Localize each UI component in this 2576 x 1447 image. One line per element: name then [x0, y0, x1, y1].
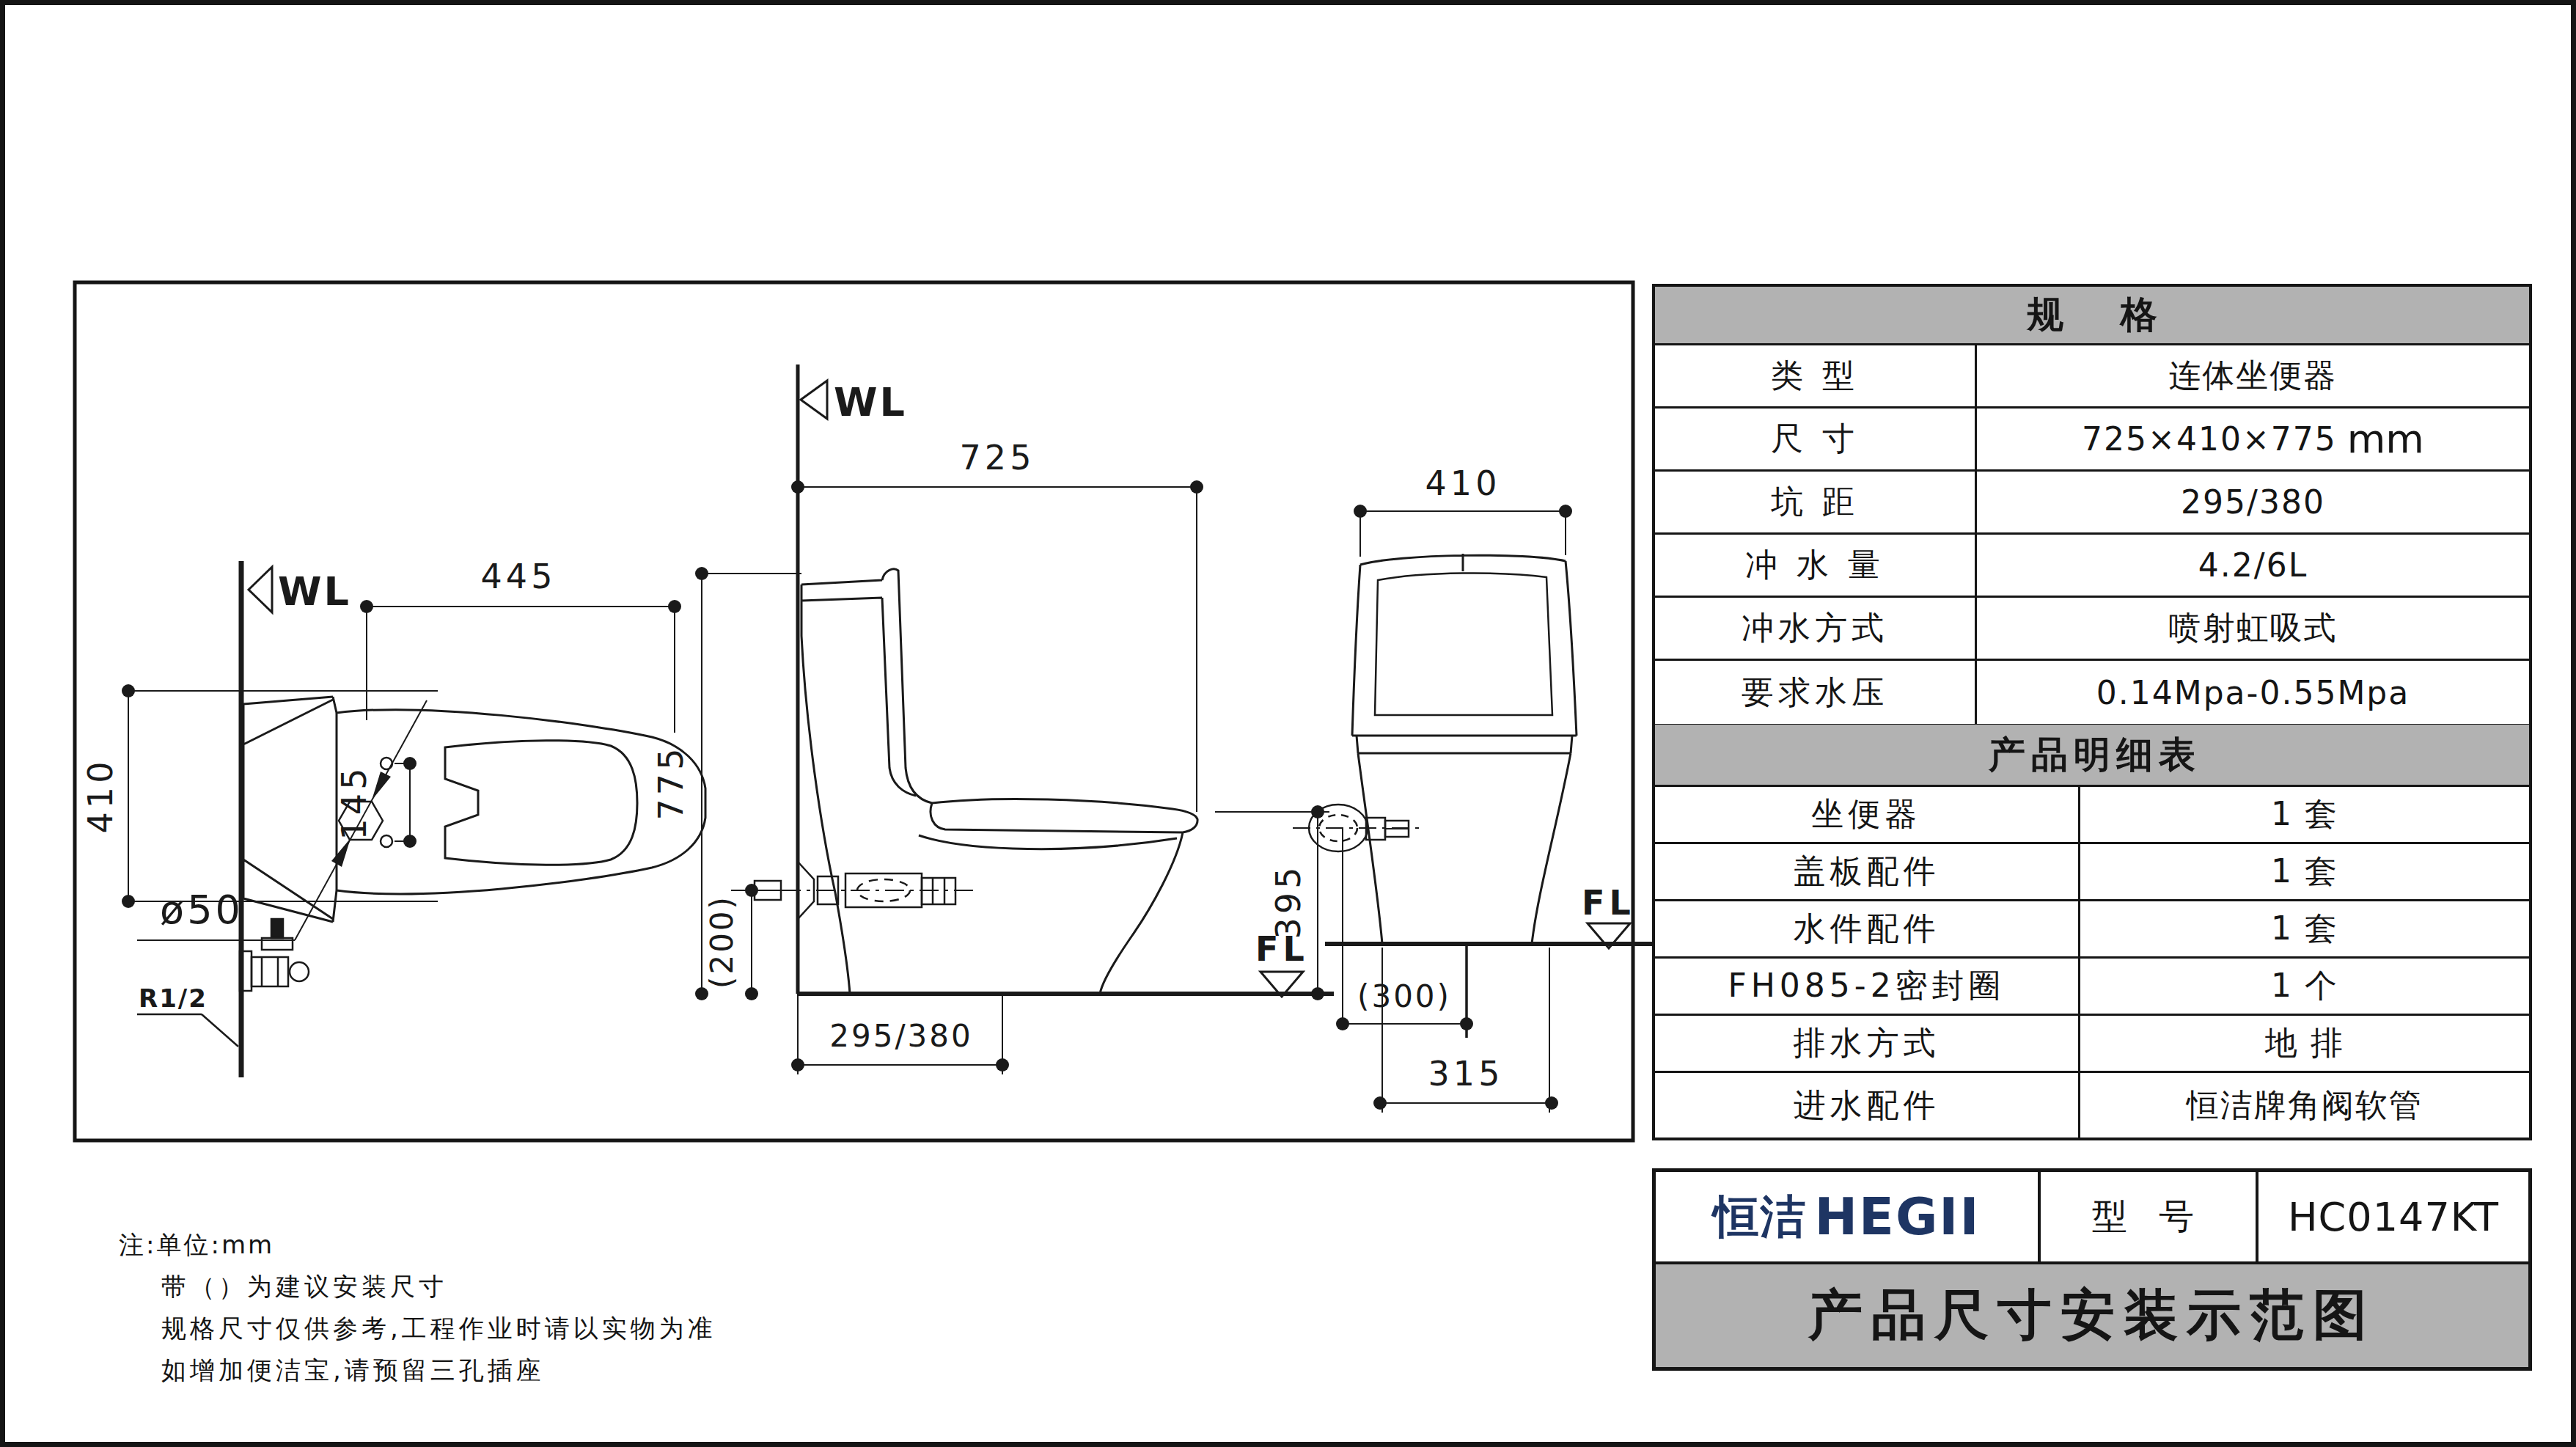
spec-table: 规 格 类 型 连体坐便器 尺 寸 725×410×775mm 坑 距 295/… — [1652, 284, 2532, 1140]
notes: 注:单位:mm 带（）为建议安装尺寸 规格尺寸仅供参考,工程作业时请以实物为准 … — [119, 1224, 716, 1391]
note-line: 如增加便洁宝,请预留三孔插座 — [161, 1349, 716, 1391]
spec-value: 喷射虹吸式 — [1977, 598, 2529, 659]
detail-table-title: 产品明细表 — [1655, 724, 2529, 787]
spec-row-flush-type: 冲水方式 喷射虹吸式 — [1655, 598, 2529, 661]
note-line: 注:单位:mm — [119, 1224, 716, 1266]
detail-value: 1 套 — [2080, 901, 2529, 956]
brand-logo-cn: 恒洁 — [1714, 1186, 1808, 1248]
dim-445: 445 — [481, 557, 557, 596]
spec-label: 要求水压 — [1655, 661, 1977, 724]
detail-value: 1 套 — [2080, 844, 2529, 899]
dim-395: 395 — [1269, 864, 1308, 939]
side-view-wl-label: WL — [834, 379, 907, 425]
detail-value: 地 排 — [2080, 1016, 2529, 1071]
detail-label: FH085-2密封圈 — [1655, 959, 2080, 1014]
detail-label: 水件配件 — [1655, 901, 2080, 956]
spec-row-size: 尺 寸 725×410×775mm — [1655, 409, 2529, 472]
installation-diagram-page: WL 445 410 145 ø50 R1/2 — [0, 0, 2576, 1447]
detail-row-drainage: 排水方式 地 排 — [1655, 1016, 2529, 1073]
spec-label: 冲 水 量 — [1655, 535, 1977, 596]
front-view: 410 FL (300) 315 — [1293, 464, 1684, 1113]
dim-775: 775 — [651, 745, 691, 821]
detail-label: 盖板配件 — [1655, 844, 2080, 899]
spec-value: 0.14Mpa-0.55Mpa — [1977, 661, 2529, 724]
spec-label: 类 型 — [1655, 345, 1977, 406]
dim-315: 315 — [1428, 1054, 1504, 1094]
detail-row-seal-ring: FH085-2密封圈 1 个 — [1655, 959, 2529, 1016]
detail-row-cover: 盖板配件 1 套 — [1655, 844, 2529, 901]
leader-arrow-icon — [331, 838, 351, 867]
dim-300: (300) — [1357, 978, 1451, 1014]
top-view-wl-label: WL — [278, 568, 351, 615]
note-line: 规格尺寸仅供参考,工程作业时请以实物为准 — [161, 1308, 716, 1349]
spec-row-roughin: 坑 距 295/380 — [1655, 472, 2529, 535]
supply-valve-top-view — [240, 919, 309, 991]
detail-value: 1 个 — [2080, 959, 2529, 1014]
spec-table-title: 规 格 — [1655, 287, 2529, 345]
detail-label: 进水配件 — [1655, 1073, 2080, 1138]
spec-label: 尺 寸 — [1655, 409, 1977, 469]
model-label: 型 号 — [2041, 1172, 2258, 1261]
spec-row-pressure: 要求水压 0.14Mpa-0.55Mpa — [1655, 661, 2529, 724]
detail-label: 坐便器 — [1655, 787, 2080, 842]
spec-row-flush-volume: 冲 水 量 4.2/6L — [1655, 535, 2529, 598]
front-view-fl-label: FL — [1582, 883, 1635, 923]
detail-row-fittings: 水件配件 1 套 — [1655, 901, 2529, 959]
dim-r12: R1/2 — [139, 983, 208, 1013]
spec-label: 冲水方式 — [1655, 598, 1977, 659]
spec-row-type: 类 型 连体坐便器 — [1655, 345, 2529, 409]
side-view: WL 725 775 (200) 395 FL 295/380 — [651, 365, 1334, 1074]
detail-value: 恒洁牌角阀软管 — [2080, 1073, 2529, 1138]
diagram-title: 产品尺寸安装示范图 — [1656, 1264, 2528, 1367]
brand-logo: 恒洁 HEGII — [1656, 1172, 2041, 1261]
detail-row-inlet: 进水配件 恒洁牌角阀软管 — [1655, 1073, 2529, 1138]
detail-label: 排水方式 — [1655, 1016, 2080, 1071]
brand-logo-en: HEGII — [1815, 1187, 1981, 1247]
title-block: 恒洁 HEGII 型 号 HC0147KT 产品尺寸安装示范图 — [1652, 1168, 2532, 1371]
wl-arrow-icon — [249, 567, 272, 612]
spec-value: 连体坐便器 — [1977, 345, 2529, 406]
model-value: HC0147KT — [2258, 1172, 2528, 1261]
spec-label: 坑 距 — [1655, 472, 1977, 532]
dim-725: 725 — [960, 438, 1035, 477]
dim-295-380: 295/380 — [829, 1018, 972, 1054]
spec-value: 725×410×775mm — [1977, 409, 2529, 469]
spec-value: 295/380 — [1977, 472, 2529, 532]
leader-arrow-icon — [372, 772, 391, 800]
dim-410-front-view: 410 — [1425, 464, 1501, 503]
dim-200: (200) — [704, 895, 740, 989]
note-line: 带（）为建议安装尺寸 — [161, 1266, 716, 1308]
seat-bolt-hole — [381, 835, 392, 847]
side-view-fl-label: FL — [1255, 929, 1309, 969]
wl-arrow-icon — [801, 381, 827, 419]
dim-145: 145 — [334, 765, 374, 840]
detail-value: 1 套 — [2080, 787, 2529, 842]
top-view: WL 445 410 145 ø50 R1/2 — [81, 557, 705, 1077]
dim-410-top-view: 410 — [81, 758, 120, 834]
dim-d50: ø50 — [160, 887, 243, 933]
detail-row-toilet: 坐便器 1 套 — [1655, 787, 2529, 844]
spec-value: 4.2/6L — [1977, 535, 2529, 596]
